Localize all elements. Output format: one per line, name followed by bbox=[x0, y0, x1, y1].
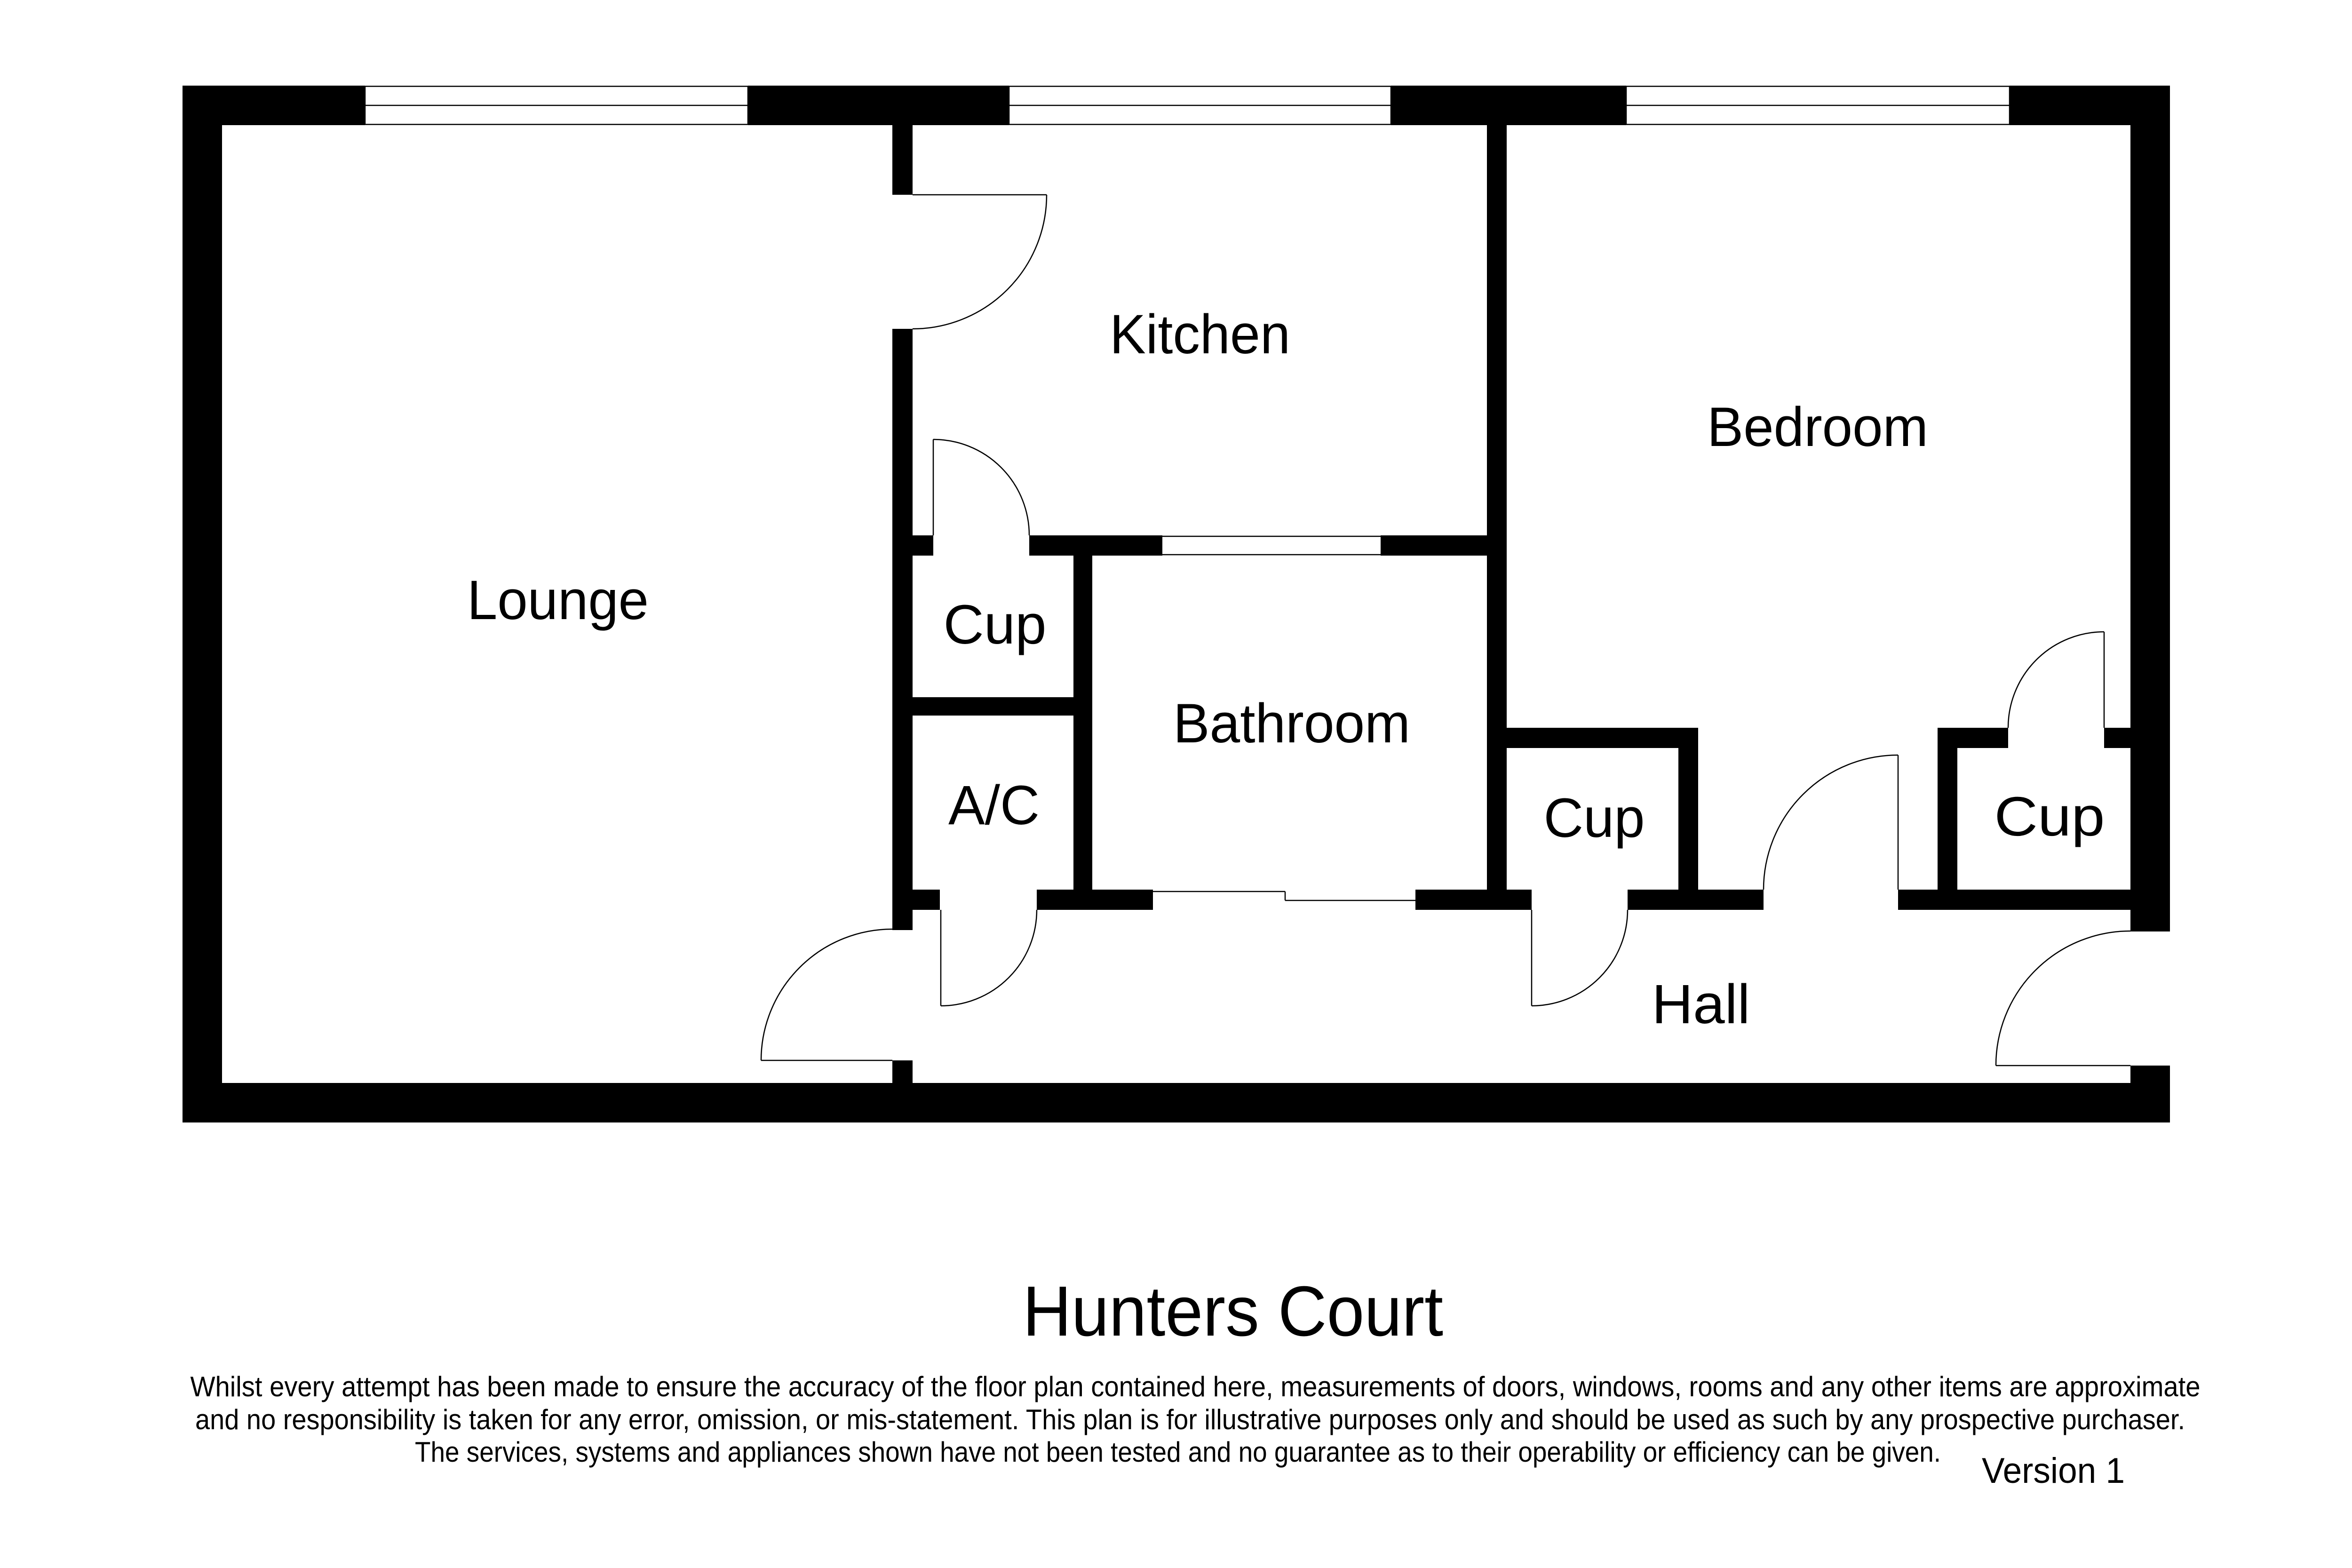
svg-text:Hall: Hall bbox=[1652, 973, 1750, 1035]
svg-text:Bedroom: Bedroom bbox=[1707, 396, 1928, 458]
svg-text:and no responsibility is taken: and no responsibility is taken for any e… bbox=[195, 1404, 2185, 1435]
svg-text:A/C: A/C bbox=[948, 774, 1040, 836]
svg-text:Cup: Cup bbox=[1994, 786, 2105, 848]
svg-text:Whilst every attempt has been: Whilst every attempt has been made to en… bbox=[191, 1371, 2201, 1402]
svg-text:Lounge: Lounge bbox=[467, 569, 649, 631]
svg-text:Kitchen: Kitchen bbox=[1110, 303, 1290, 366]
svg-text:Version 1: Version 1 bbox=[1982, 1451, 2125, 1491]
svg-text:Cup: Cup bbox=[944, 594, 1047, 656]
svg-text:The services, systems and appl: The services, systems and appliances sho… bbox=[415, 1436, 1941, 1468]
svg-text:Cup: Cup bbox=[1544, 787, 1645, 849]
svg-text:Bathroom: Bathroom bbox=[1173, 692, 1410, 755]
svg-text:Hunters Court: Hunters Court bbox=[1023, 1271, 1443, 1351]
